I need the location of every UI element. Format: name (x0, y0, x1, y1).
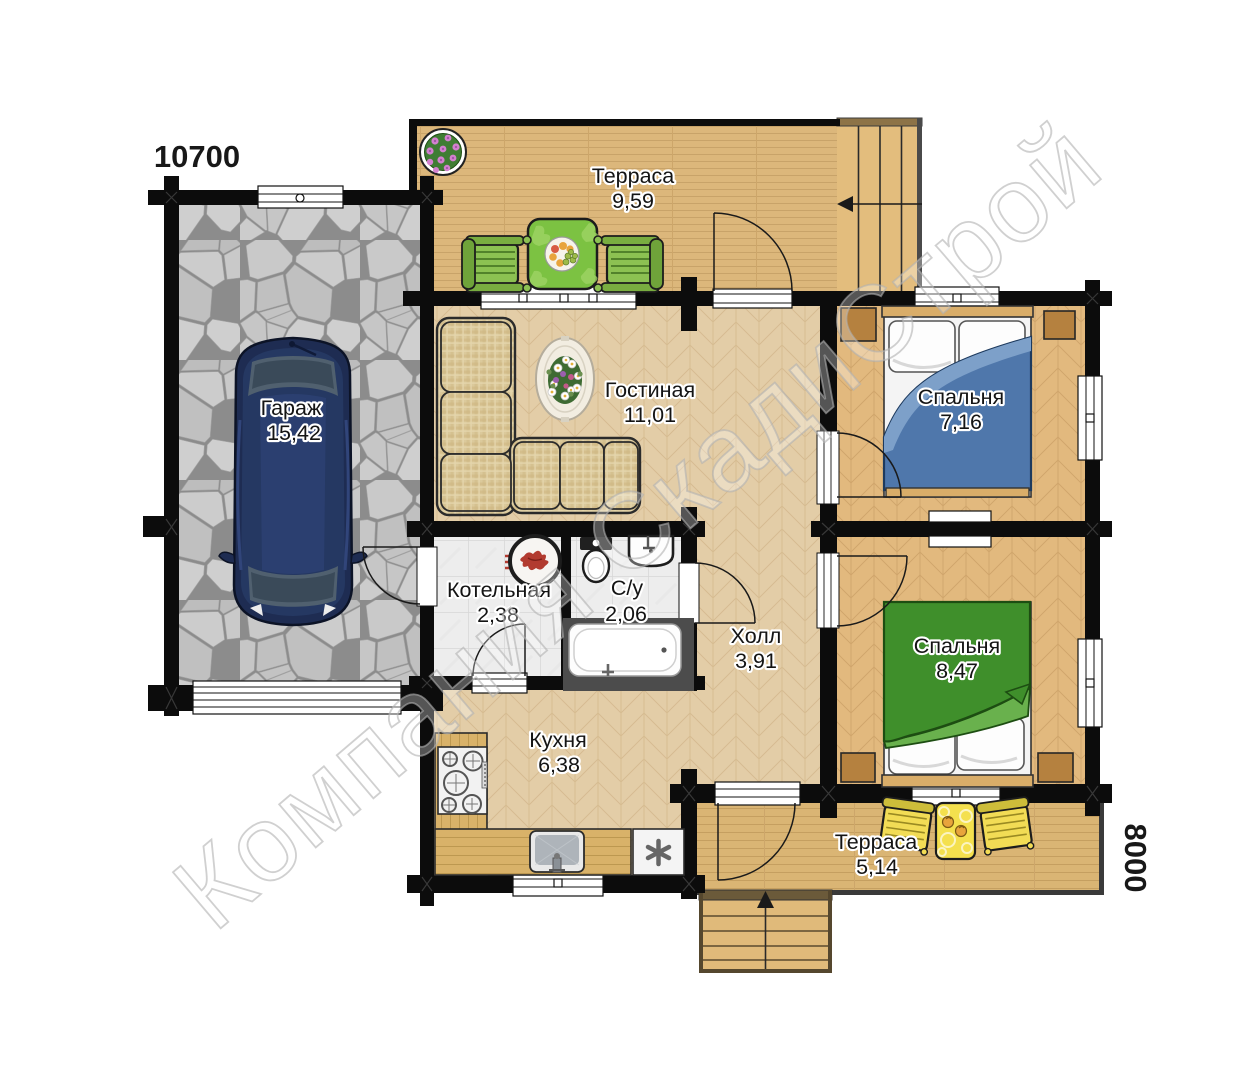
svg-text:8,47: 8,47 (936, 659, 978, 683)
svg-text:Гостиная: Гостиная (605, 378, 695, 402)
svg-text:8000: 8000 (1118, 824, 1153, 893)
svg-text:3,91: 3,91 (735, 649, 777, 673)
svg-text:6,38: 6,38 (538, 753, 580, 777)
svg-text:Гараж: Гараж (261, 396, 322, 420)
svg-text:Спальня: Спальня (914, 634, 1000, 658)
svg-text:10700: 10700 (154, 139, 240, 174)
svg-text:Холл: Холл (731, 624, 782, 648)
svg-text:Терраса: Терраса (592, 164, 675, 188)
svg-text:5,14: 5,14 (856, 855, 898, 879)
svg-text:Спальня: Спальня (918, 385, 1004, 409)
svg-text:Терраса: Терраса (835, 830, 918, 854)
svg-text:Кухня: Кухня (529, 728, 587, 752)
svg-text:7,16: 7,16 (940, 410, 982, 434)
svg-text:15,42: 15,42 (267, 421, 321, 445)
svg-text:9,59: 9,59 (612, 189, 654, 213)
